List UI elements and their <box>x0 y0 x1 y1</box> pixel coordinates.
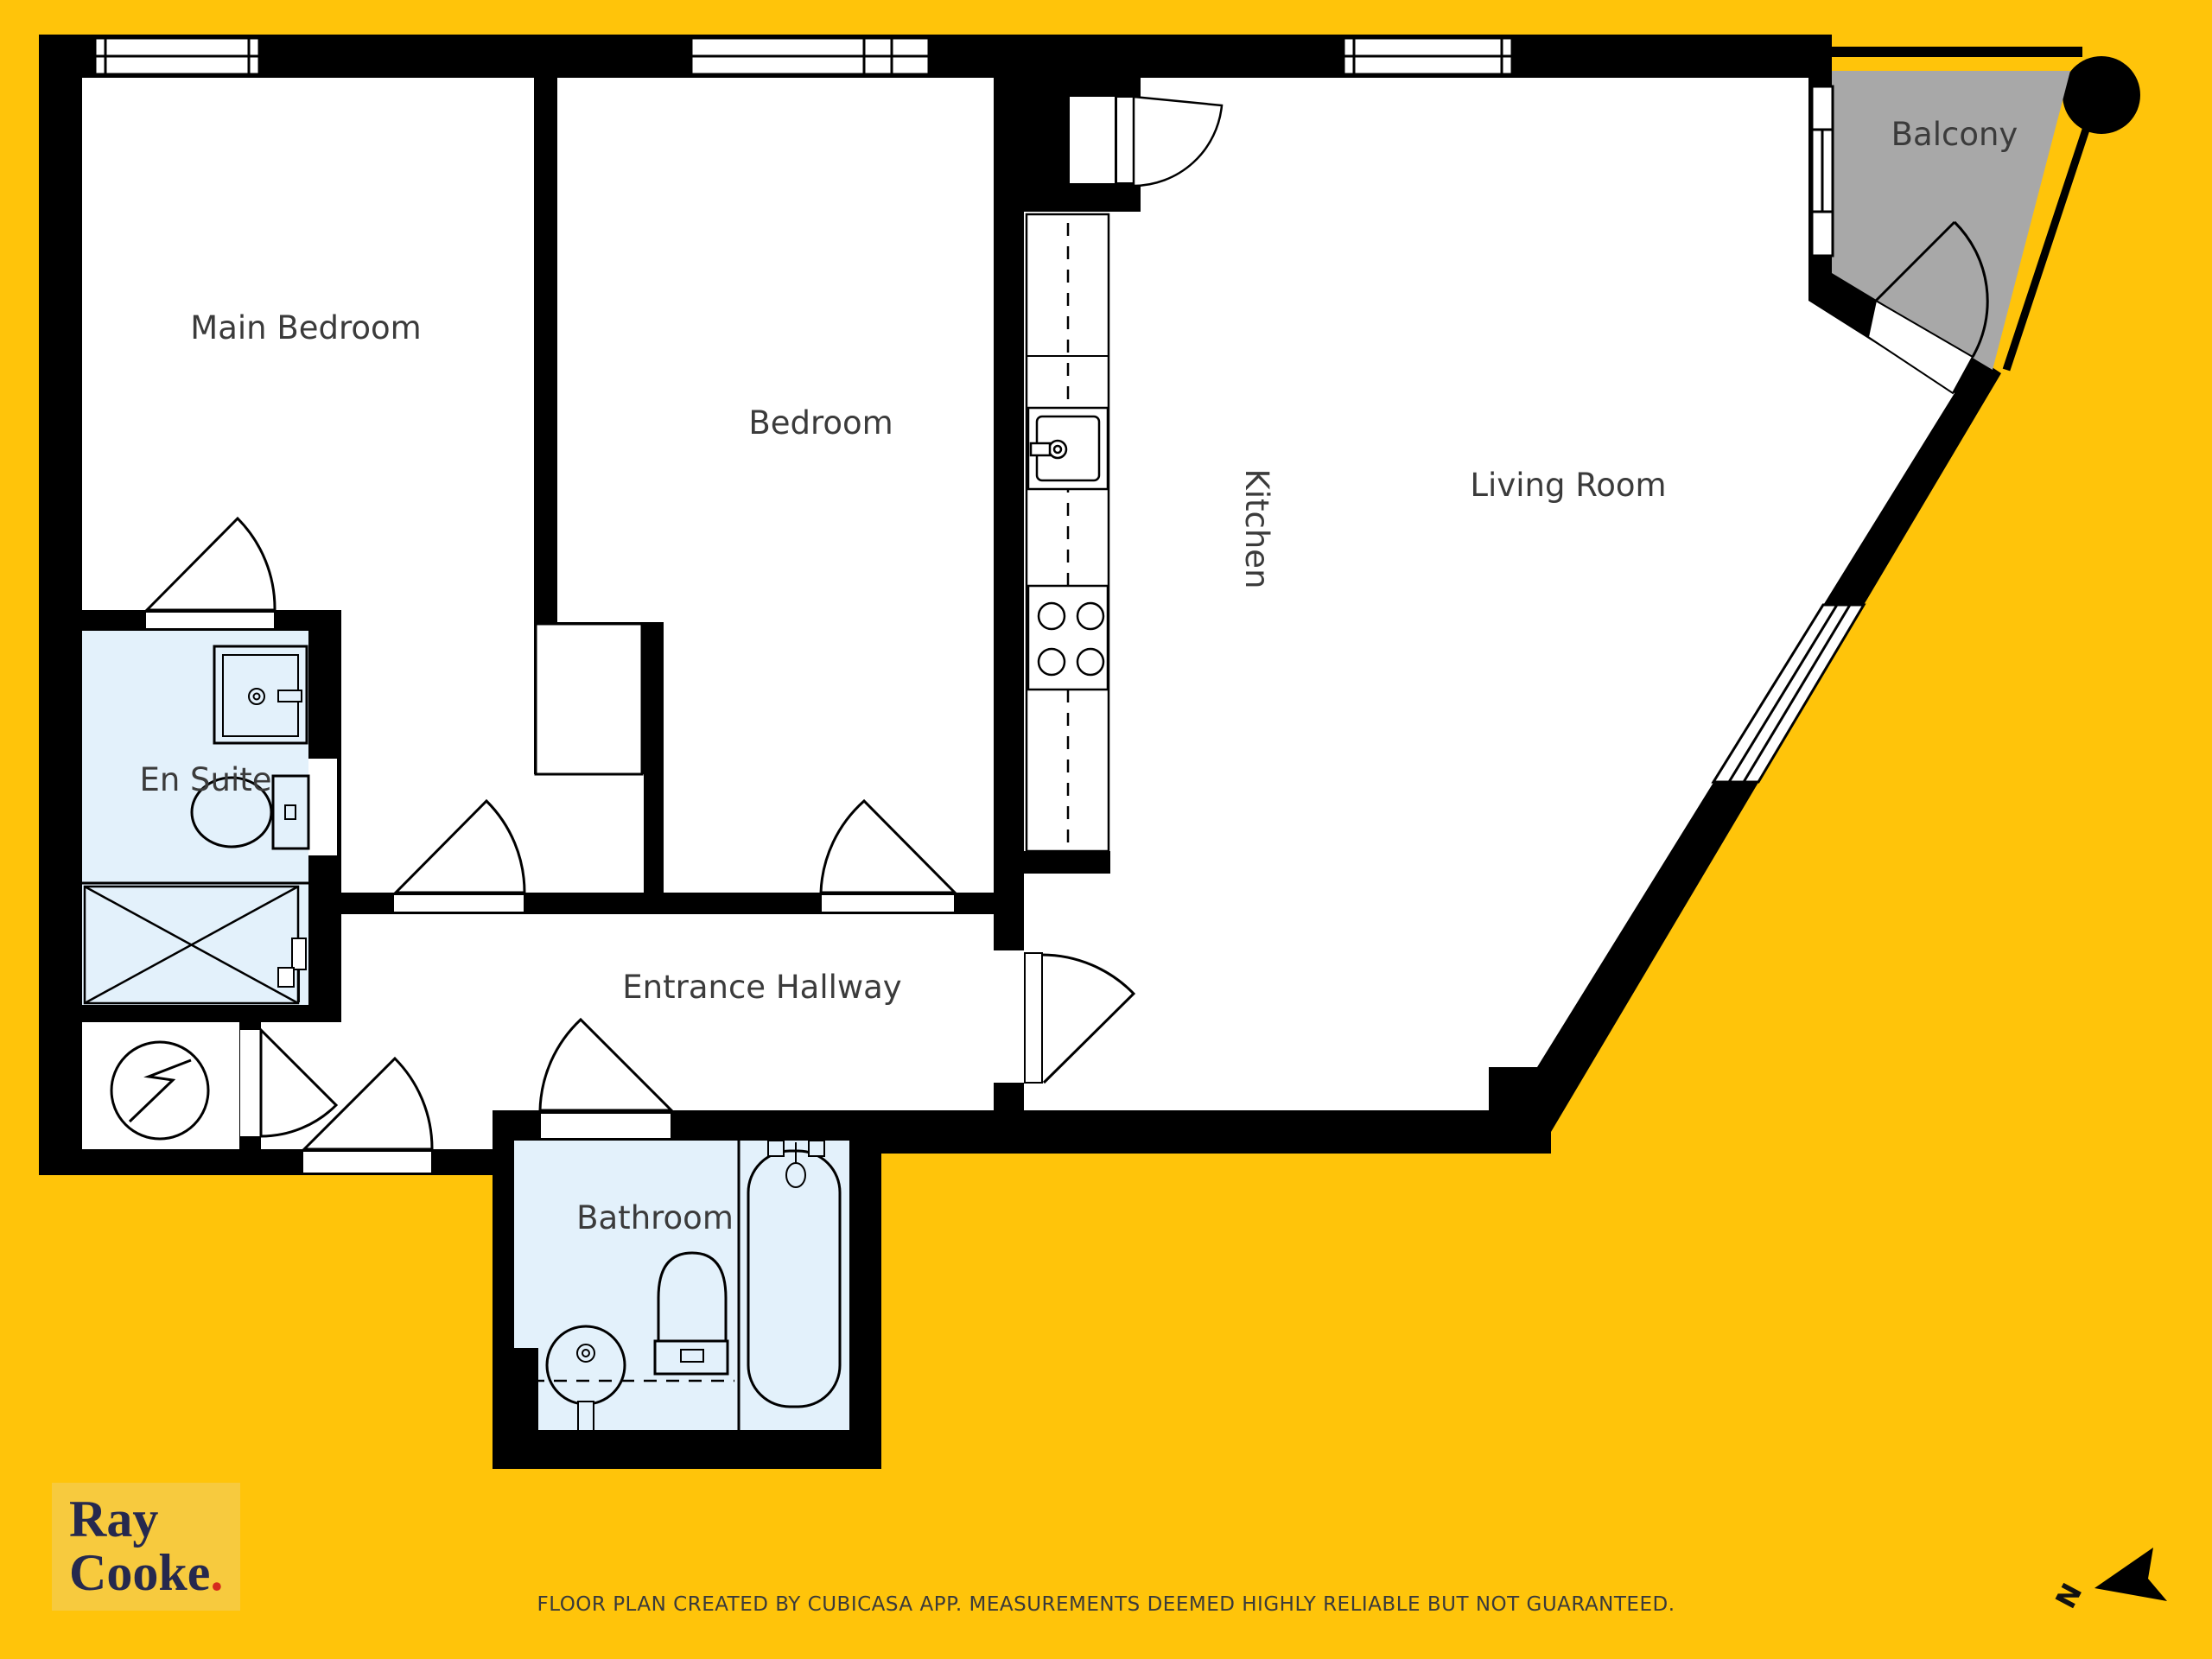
kitchen-counter <box>1027 214 1109 851</box>
window-living-room-icon <box>1344 38 1512 74</box>
window-balcony-icon <box>1812 86 1833 256</box>
north-arrow-icon: N <box>2049 1548 2167 1614</box>
floor-plan-canvas: Main Bedroom Bedroom Kitchen Living Room… <box>0 0 2212 1659</box>
footer-disclaimer: FLOOR PLAN CREATED BY CUBICASA APP. MEAS… <box>537 1593 1675 1616</box>
ray-cooke-logo: Ray Cooke. <box>52 1483 240 1611</box>
logo-line2: Cooke <box>69 1544 210 1601</box>
en-suite-niche <box>308 759 337 855</box>
stove-icon <box>1028 586 1108 690</box>
kitchen-counter-end-wall <box>1002 851 1110 874</box>
kitchen-sink-icon <box>1028 408 1108 489</box>
logo-period: . <box>210 1544 223 1601</box>
compass-label: N <box>2049 1578 2088 1613</box>
window-main-bedroom-icon <box>95 38 259 74</box>
room-label-bathroom: Bathroom <box>576 1199 734 1236</box>
room-label-main-bedroom: Main Bedroom <box>190 309 421 346</box>
window-bedroom-icon <box>691 38 929 74</box>
room-label-kitchen: Kitchen <box>1238 468 1275 588</box>
room-label-entrance-hallway: Entrance Hallway <box>622 969 901 1006</box>
logo-line1: Ray <box>69 1491 158 1548</box>
wardrobe <box>536 624 642 774</box>
room-label-bedroom: Bedroom <box>748 404 893 442</box>
room-label-balcony: Balcony <box>1891 116 2018 153</box>
bathroom-toilet-icon <box>655 1253 728 1374</box>
balcony-corner-dot <box>2063 56 2140 134</box>
room-label-en-suite: En Suite <box>139 761 271 798</box>
bathroom-wall-step <box>493 1348 538 1469</box>
room-label-living-room: Living Room <box>1470 467 1666 504</box>
main-bedroom-nook <box>534 774 644 893</box>
balcony-rail <box>1832 47 2082 57</box>
svg-text:Cooke.: Cooke. <box>69 1544 223 1601</box>
floor-plan-page: Main Bedroom Bedroom Kitchen Living Room… <box>0 0 2212 1659</box>
